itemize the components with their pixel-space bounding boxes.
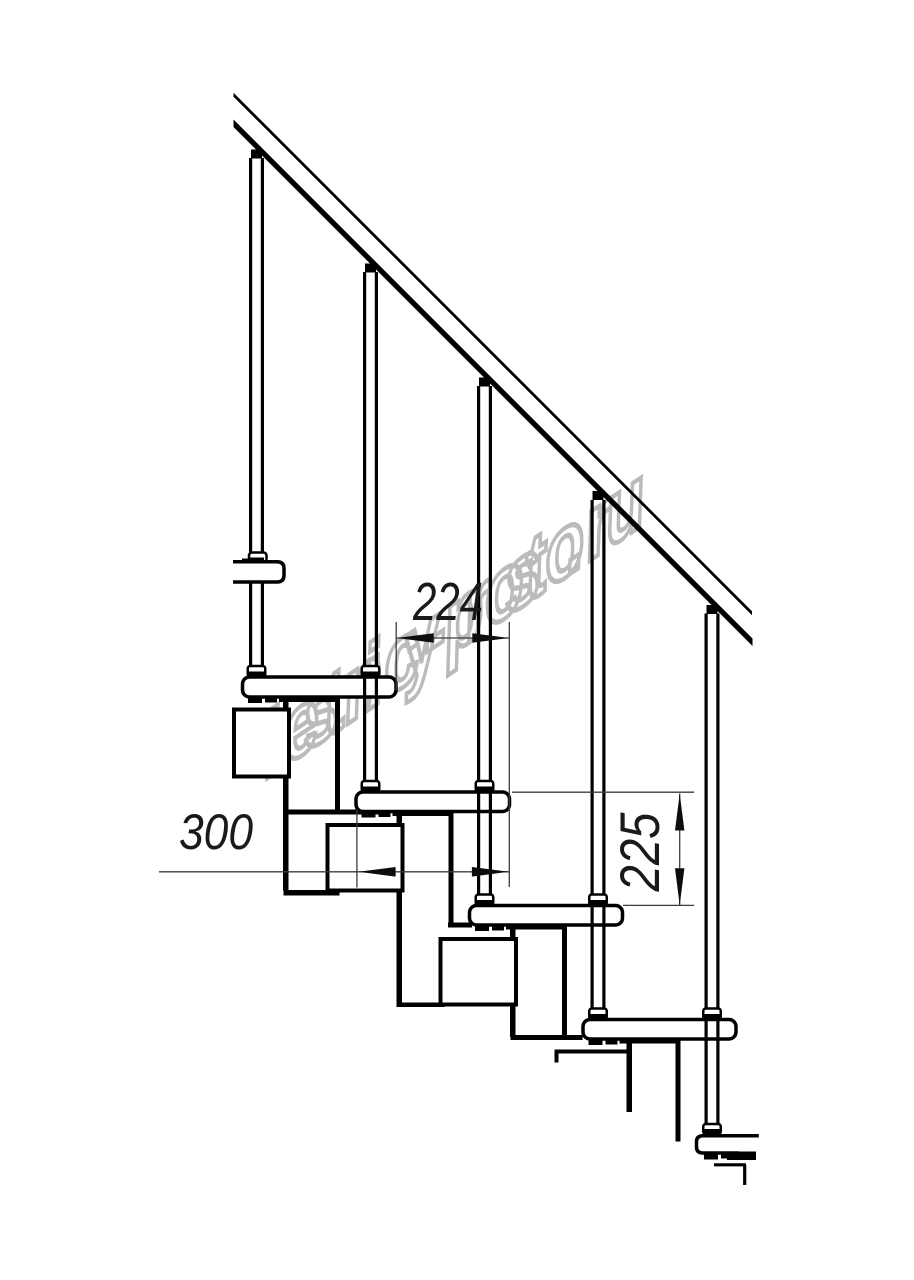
svg-text:225: 225 xyxy=(608,812,671,893)
svg-text:300: 300 xyxy=(179,804,253,860)
svg-text:224: 224 xyxy=(412,572,483,632)
